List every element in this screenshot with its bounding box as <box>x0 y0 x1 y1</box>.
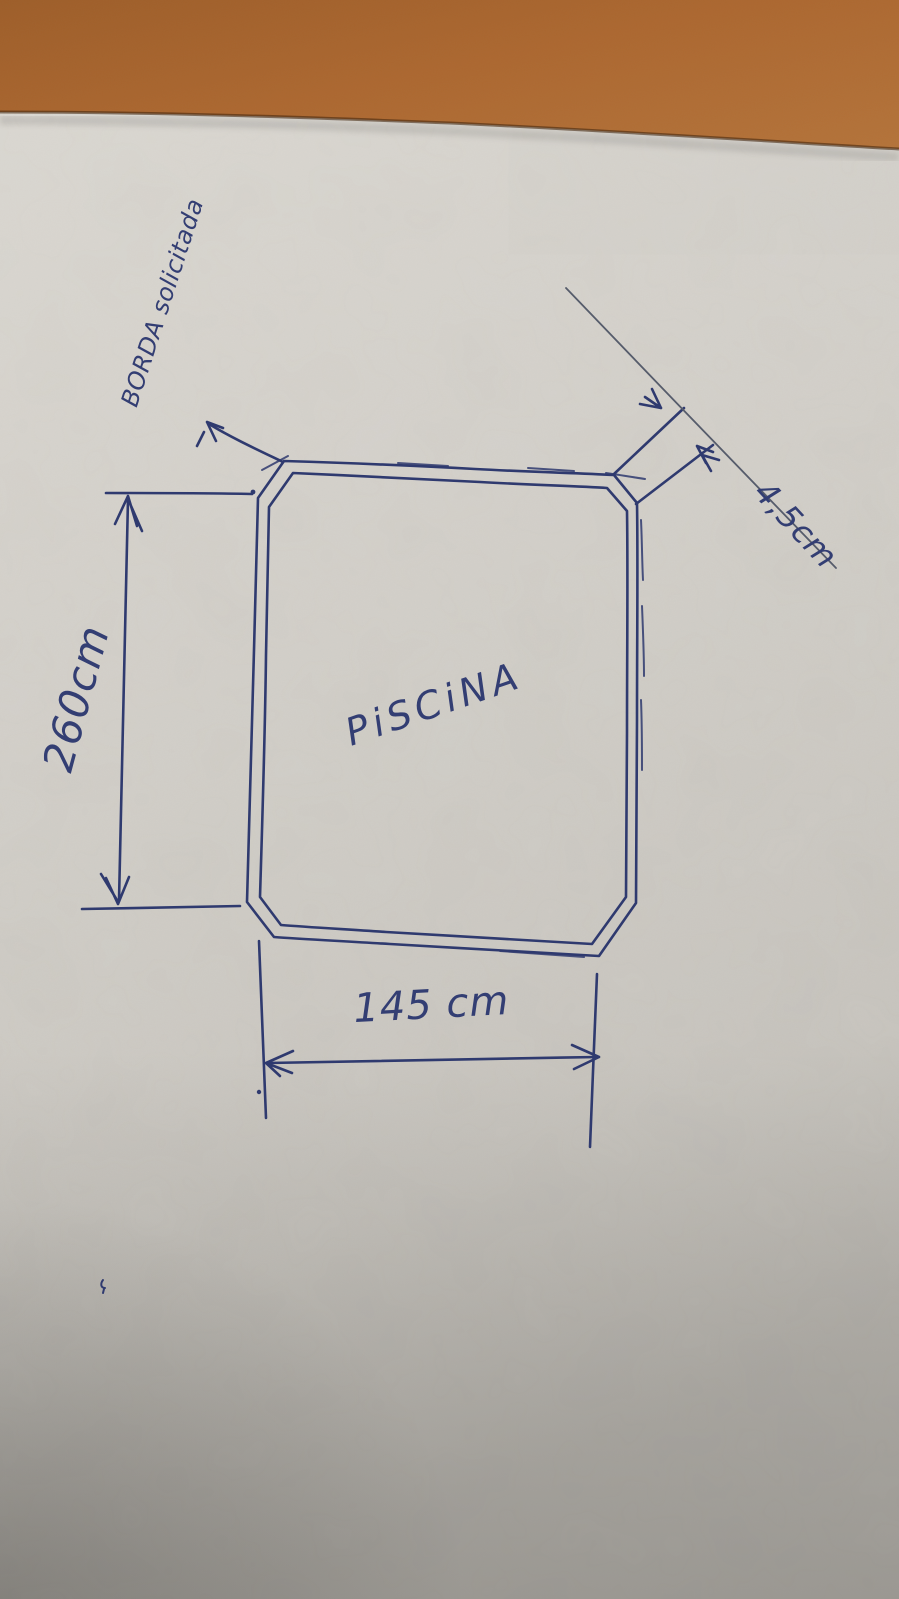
width-dimension-label: 145 cm <box>352 978 510 1032</box>
corner-shadow <box>0 1150 520 1599</box>
dim145-ink-dot <box>257 1090 261 1094</box>
dim260-ink-dot <box>251 490 256 495</box>
sketch-canvas: BORDA solicitada PiSCiNA 260cm 145 cm 4,… <box>0 0 899 1599</box>
dim260-ext-top <box>106 493 252 494</box>
photographed-pool-sketch: BORDA solicitada PiSCiNA 260cm 145 cm 4,… <box>0 0 899 1599</box>
